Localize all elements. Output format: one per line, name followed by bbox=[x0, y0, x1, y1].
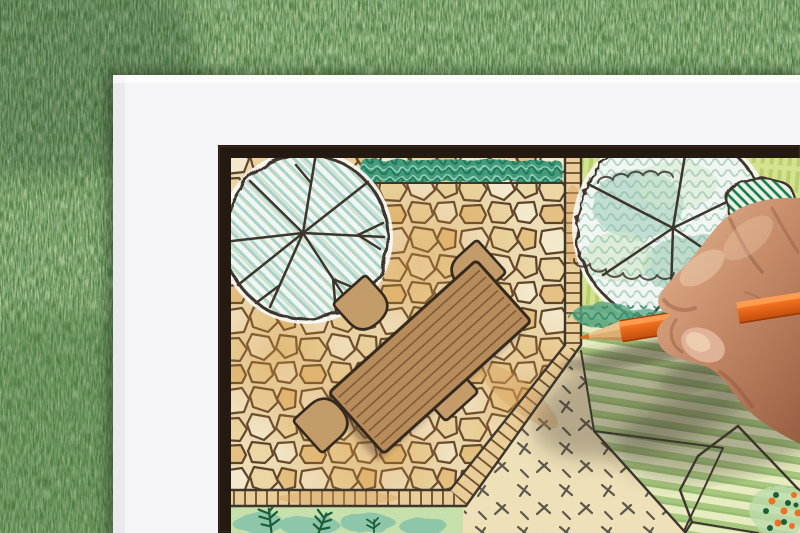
screenshot-root bbox=[0, 0, 800, 533]
photo-canvas bbox=[0, 0, 800, 533]
